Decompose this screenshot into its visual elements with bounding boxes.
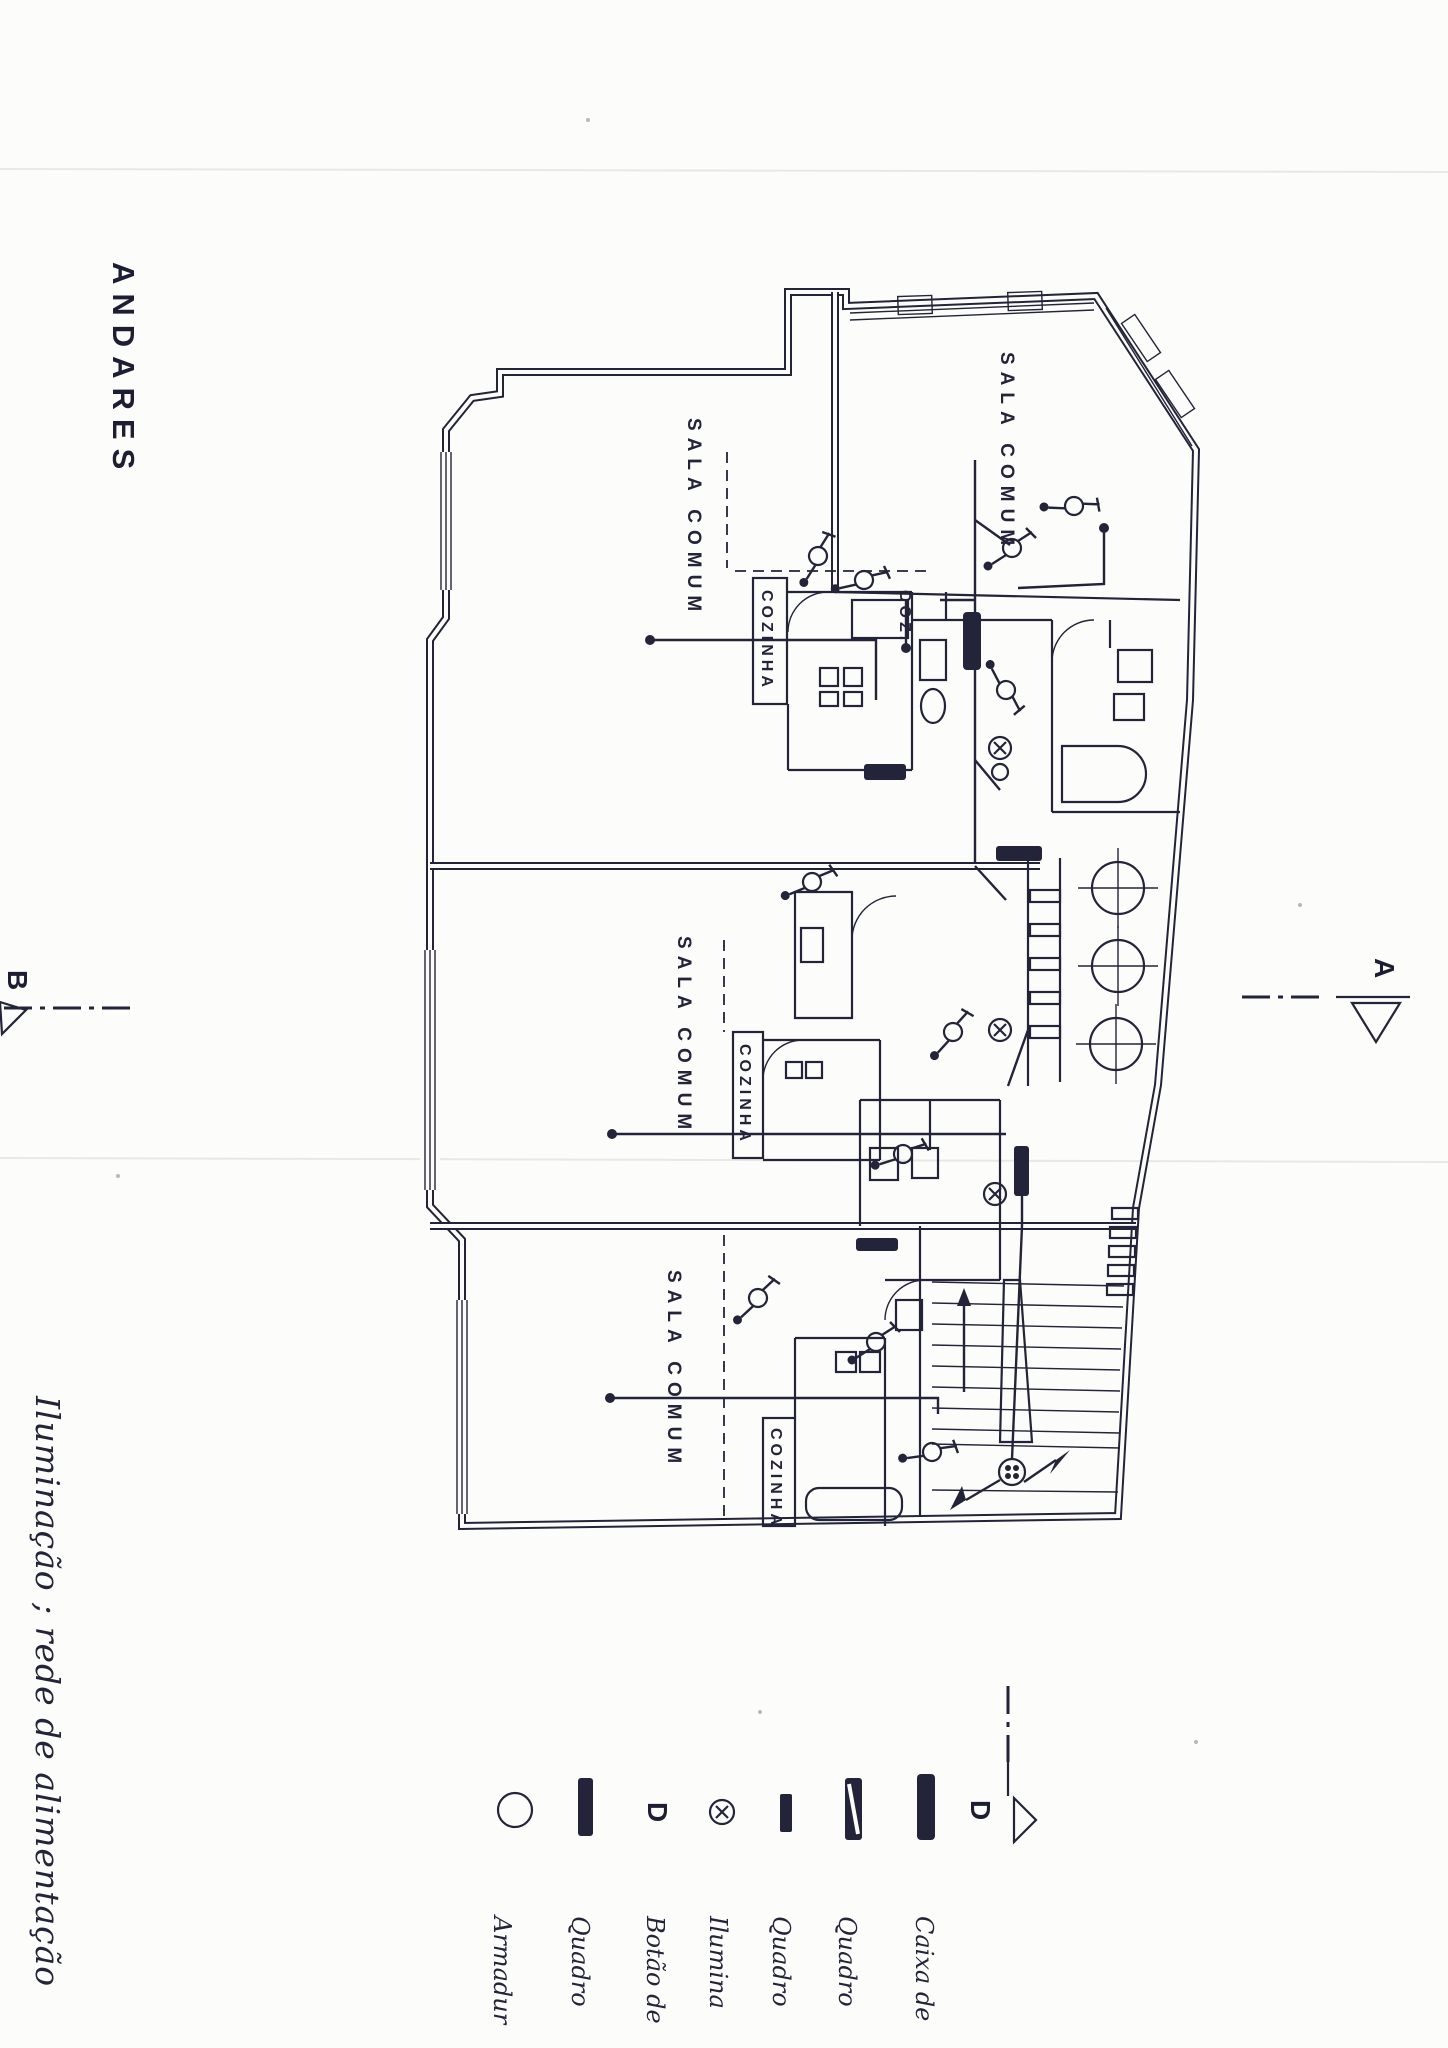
lamp-icon bbox=[989, 737, 1011, 759]
legend-symbol-bar-tall bbox=[578, 1778, 593, 1836]
switch-icon bbox=[981, 660, 1028, 716]
room-label-coz-abbrev: COZ. bbox=[896, 590, 913, 644]
light-well-circles bbox=[1076, 848, 1158, 1084]
legend-symbol-circled-cross bbox=[710, 1800, 734, 1824]
distribution-bar bbox=[996, 846, 1042, 861]
lamp-icon bbox=[989, 1019, 1011, 1041]
switch-icon bbox=[897, 1422, 963, 1483]
building-outline bbox=[430, 292, 1196, 1526]
switch-icon bbox=[784, 528, 850, 589]
room-label-cozinha-2: COZINHA bbox=[736, 1044, 753, 1145]
legend: D D Armadur Quadro Botão de Ilumina Quad… bbox=[488, 1686, 1036, 2026]
switch-icon bbox=[726, 1274, 785, 1325]
room-label-cozinha-1: COZINHA bbox=[758, 590, 775, 691]
scanned-floorplan-sheet: ANDARES SALA COMUM SALA COMUM SALA COMUM… bbox=[0, 0, 1448, 2048]
distribution-bar bbox=[1014, 1146, 1029, 1196]
legend-label-ilumina: Ilumina bbox=[704, 1915, 732, 2009]
legend-symbol-letter-d: D bbox=[642, 1802, 673, 1822]
legend-symbol-bar-thick bbox=[917, 1774, 935, 1840]
legend-label-caixa: Caixa de bbox=[910, 1916, 938, 2021]
legend-symbol-circle bbox=[498, 1793, 532, 1827]
section-label-b: B bbox=[2, 970, 33, 990]
distribution-bar bbox=[864, 764, 906, 780]
section-marker-b: B bbox=[0, 970, 136, 1034]
ceiling-outlet bbox=[605, 1393, 938, 1414]
section-label-a: A bbox=[1369, 958, 1400, 978]
page-title: ANDARES bbox=[106, 262, 141, 478]
legend-label-quadro-2: Quadro bbox=[767, 1916, 795, 2007]
legend-symbols: D bbox=[498, 1774, 935, 1840]
switch-icon bbox=[920, 1006, 982, 1061]
room-label-sala-comum-4: SALA COMUM bbox=[663, 1270, 684, 1470]
legend-label-quadro-1: Quadro bbox=[566, 1916, 594, 2007]
ceiling-outlet bbox=[607, 1129, 1006, 1139]
scan-artifacts bbox=[0, 118, 1448, 1744]
entry-lamp-icon bbox=[999, 1459, 1025, 1485]
interior-partitions bbox=[733, 578, 1180, 1526]
lamp-icon bbox=[984, 1183, 1006, 1205]
room-label-sala-comum-3: SALA COMUM bbox=[673, 936, 694, 1136]
room-label-cozinha-3: COZINHA bbox=[767, 1428, 784, 1529]
switch-icon bbox=[1038, 473, 1105, 538]
room-label-sala-comum-1: SALA COMUM bbox=[683, 418, 704, 618]
distribution-bar bbox=[856, 1238, 898, 1251]
legend-labels: Armadur Quadro Botão de Ilumina Quadro Q… bbox=[488, 1914, 938, 2026]
switch-icon bbox=[848, 1322, 901, 1365]
legend-symbol-bar-small bbox=[780, 1794, 792, 1832]
legend-label-armadura: Armadur bbox=[488, 1914, 516, 2026]
sheet-caption: Iluminação ; rede de alimentação bbox=[28, 1395, 67, 1987]
floorplan-drawing: ANDARES SALA COMUM SALA COMUM SALA COMUM… bbox=[0, 0, 1448, 2048]
window-bays bbox=[420, 291, 1194, 1514]
legend-label-quadro-3: Quadro bbox=[833, 1916, 861, 2007]
distribution-bar bbox=[963, 612, 981, 670]
section-marker-a: A bbox=[1242, 958, 1410, 1042]
legend-d-marker: D bbox=[965, 1686, 1036, 1842]
legend-label-botao: Botão de bbox=[641, 1915, 669, 2024]
legend-d-label: D bbox=[965, 1800, 996, 1820]
legend-symbol-bar-diagonal bbox=[845, 1778, 862, 1840]
room-label-sala-comum-2: SALA COMUM bbox=[996, 352, 1017, 552]
stairwell bbox=[920, 1208, 1138, 1516]
unit-divider-walls bbox=[430, 292, 1136, 1226]
